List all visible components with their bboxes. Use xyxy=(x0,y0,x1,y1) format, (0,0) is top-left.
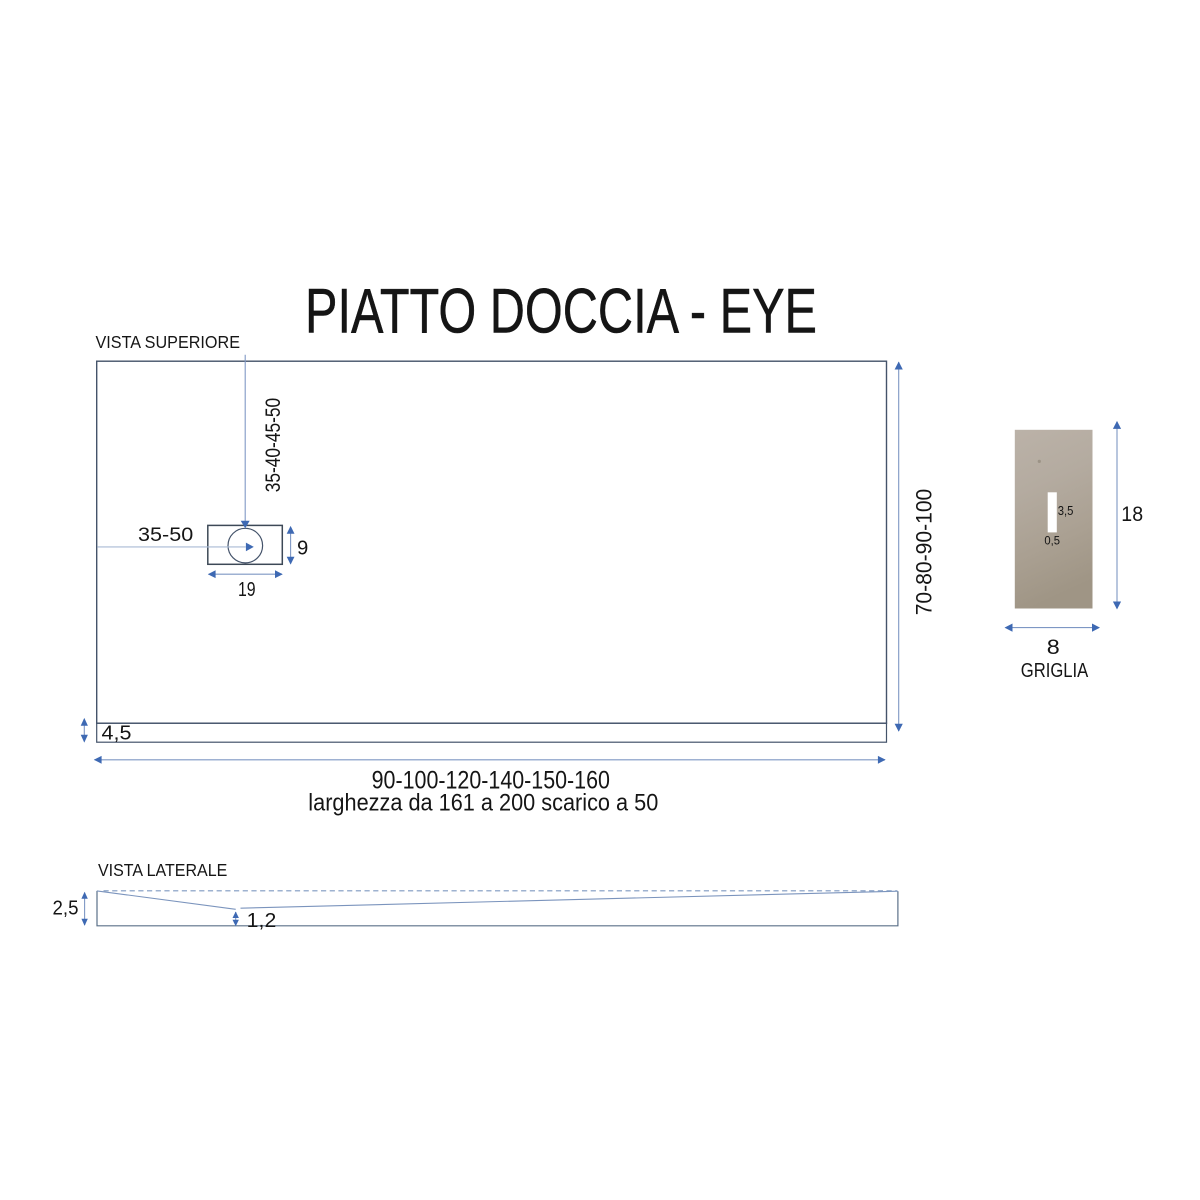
svg-text:3,5: 3,5 xyxy=(1058,504,1074,518)
svg-text:0,5: 0,5 xyxy=(1044,534,1060,548)
svg-text:9: 9 xyxy=(297,536,308,559)
svg-text:GRIGLIA: GRIGLIA xyxy=(1021,660,1089,682)
svg-text:70-80-90-100: 70-80-90-100 xyxy=(911,489,936,616)
svg-text:VISTA LATERALE: VISTA LATERALE xyxy=(98,860,227,880)
svg-text:35-40-45-50: 35-40-45-50 xyxy=(261,398,285,493)
svg-text:4,5: 4,5 xyxy=(102,722,132,744)
svg-text:19: 19 xyxy=(238,579,256,601)
svg-text:VISTA SUPERIORE: VISTA SUPERIORE xyxy=(96,332,241,352)
svg-text:8: 8 xyxy=(1047,635,1060,659)
svg-text:larghezza da 161 a 200 scarico: larghezza da 161 a 200 scarico a 50 xyxy=(308,790,658,817)
svg-text:PIATTO DOCCIA - EYE: PIATTO DOCCIA - EYE xyxy=(305,277,817,347)
svg-text:18: 18 xyxy=(1121,502,1143,526)
svg-text:35-50: 35-50 xyxy=(138,524,193,546)
svg-text:2,5: 2,5 xyxy=(53,898,79,920)
svg-text:1,2: 1,2 xyxy=(247,910,277,932)
